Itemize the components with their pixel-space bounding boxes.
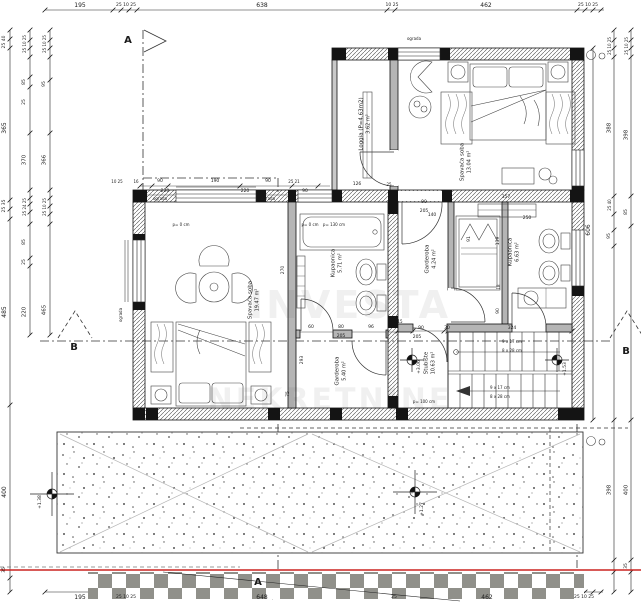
room-label-staircase: Stubište10.63 m² (424, 352, 436, 375)
room-label-bathroom-2: Kupaonica6.63 m² (508, 238, 520, 266)
watermark-text: NEKRETNINE (208, 383, 453, 418)
room-label-wardrobe-2: Garderoba5.40 m² (335, 356, 347, 385)
dim-label: 25 40 (608, 199, 612, 210)
dim-label: 25 10 25 (625, 37, 629, 55)
room-label-loggia: Loggia (P=4.63m2)3.62 m² (359, 97, 371, 150)
dim-label: 85 (23, 79, 28, 85)
dim-label: 95 (608, 233, 613, 239)
section-label: B (622, 347, 630, 357)
dim-label: 85 (625, 209, 630, 215)
dim-label: 220 (22, 307, 28, 318)
note-label: p= 0 cm (172, 223, 189, 227)
room-area: 5.71 m² (338, 249, 343, 277)
dim-label: 220 (241, 190, 250, 195)
dim-label: 648 (256, 595, 267, 601)
note-label: p= 0 cm (301, 223, 318, 227)
dim-label: 293 (301, 356, 306, 365)
room-name: Loggia (P=4.63m2) (359, 97, 365, 150)
dim-label: 85 (23, 239, 28, 245)
elevation-label: +1.53 (564, 362, 569, 376)
dim-label: 140 (428, 214, 437, 219)
dim-label: 25 10 25 (43, 198, 47, 216)
room-name: Kupaonica (331, 249, 337, 277)
dim-label: 25 (391, 596, 397, 601)
dim-label: 25 (386, 183, 391, 187)
room-area: 4.24 m² (432, 244, 437, 273)
dim-label: 638 (256, 3, 267, 9)
stair-note: 8 x 28 cm (502, 349, 522, 353)
note-label: ograda (153, 197, 167, 201)
dim-label: 91 (468, 236, 473, 242)
dim-label: 90 (302, 190, 308, 195)
dim-label: 25 (23, 259, 28, 265)
dim-label: 462 (480, 3, 491, 9)
note-label: ograda (119, 308, 123, 322)
dim-label: 35 (625, 563, 630, 569)
stair-note: 8 x 28 cm (490, 395, 510, 399)
dim-label: 465 (42, 305, 48, 316)
dim-label: 270 (282, 266, 287, 275)
dim-label: 90 (421, 201, 427, 206)
note-label: p= 130 cm (323, 223, 345, 227)
dim-label: 25 10 25 (23, 35, 27, 53)
room-area: 6.63 m² (515, 238, 520, 266)
dim-label: 126 (353, 183, 362, 188)
room-label-bathroom-1: Kupaonica5.71 m² (331, 249, 343, 277)
room-area: 10.63 m² (431, 352, 436, 375)
dim-label: 25 10 25 (43, 35, 47, 53)
room-name: Garderoba (335, 356, 341, 385)
note-label: ograda (407, 37, 421, 41)
room-area: 3.62 m² (366, 97, 371, 150)
labels-layer: 19525 10 2563810 2546225 10 2519525 10 2… (0, 0, 641, 606)
dim-label: 90 (497, 308, 502, 314)
dim-label: 25 10 25 (116, 4, 136, 9)
elevation-label: +1.27 (421, 502, 426, 516)
room-label-wardrobe-1: Garderoba4.24 m² (425, 244, 437, 273)
dim-label: 400 (2, 486, 8, 497)
dim-label: 190 (211, 180, 220, 185)
dim-label: 357 (502, 196, 511, 201)
dim-label: 35 (3, 567, 8, 573)
section-label: A (124, 36, 132, 46)
room-area: 13.04 m² (467, 143, 472, 181)
room-area: 5.40 m² (342, 356, 347, 385)
dim-label: 30 (444, 327, 450, 332)
dim-label: 195 (74, 3, 85, 9)
dim-label: 25 10 25 (608, 37, 612, 55)
dim-label: 220 (161, 190, 170, 195)
stair-note: 9 x 17 cm (502, 340, 522, 344)
dim-label: 366 (42, 155, 48, 166)
dim-label: 205 (413, 336, 422, 341)
section-label: A (254, 578, 262, 588)
dim-label: 250 (523, 217, 532, 222)
dim-label: 25 10 25 (578, 4, 598, 9)
dim-label: 16 (133, 180, 138, 184)
room-name: Stubište (424, 352, 430, 375)
dim-label: 139 (497, 237, 502, 246)
dim-label: 25 21 (288, 180, 299, 184)
dim-label: 10 25 (111, 180, 122, 184)
dim-label: 370 (22, 155, 28, 166)
room-name: Spavaća soba (460, 143, 466, 181)
floor-plan-page: 19525 10 2563810 2546225 10 2519525 10 2… (0, 0, 641, 606)
dim-label: 18 (497, 284, 501, 289)
dim-label: 25 35 (3, 200, 8, 213)
dim-label: 205 (337, 335, 346, 340)
dim-label: 25 40 (3, 36, 8, 49)
watermark-text: INVESTA (249, 283, 451, 327)
dim-label: 400 (624, 485, 630, 496)
dim-label: 25 10 25 (574, 596, 594, 601)
dim-label: 606 (586, 224, 592, 235)
dim-label: 25 10 25 (116, 596, 136, 601)
dim-label: 10 25 (386, 4, 399, 9)
dim-label: 25 (23, 99, 28, 105)
dim-label: 398 (624, 130, 630, 141)
note-label: ograda (261, 197, 275, 201)
dim-label: 485 (2, 306, 8, 317)
dim-label: 90 (157, 180, 163, 185)
dim-label: 90 (265, 180, 271, 185)
dim-label: 90 (418, 327, 424, 332)
dim-label: 324 (508, 327, 517, 332)
dim-label: 398 (607, 485, 613, 496)
elevation-label: +3.06 (418, 360, 423, 374)
dim-label: 95 (43, 81, 48, 87)
dim-label: 195 (74, 595, 85, 601)
room-name: Garderoba (425, 244, 431, 273)
dim-label: 365 (2, 122, 8, 133)
stair-note: 9 x 17 cm (490, 386, 510, 390)
dim-label: 388 (607, 123, 613, 134)
room-name: Kupaonica (508, 238, 514, 266)
dim-label: 462 (481, 595, 492, 601)
section-label: B (70, 343, 78, 353)
elevation-label: +1.38 (39, 495, 44, 509)
room-label-bedroom-1: Spavaća soba13.04 m² (460, 143, 472, 181)
dim-label: 25 24 25 (23, 198, 27, 216)
